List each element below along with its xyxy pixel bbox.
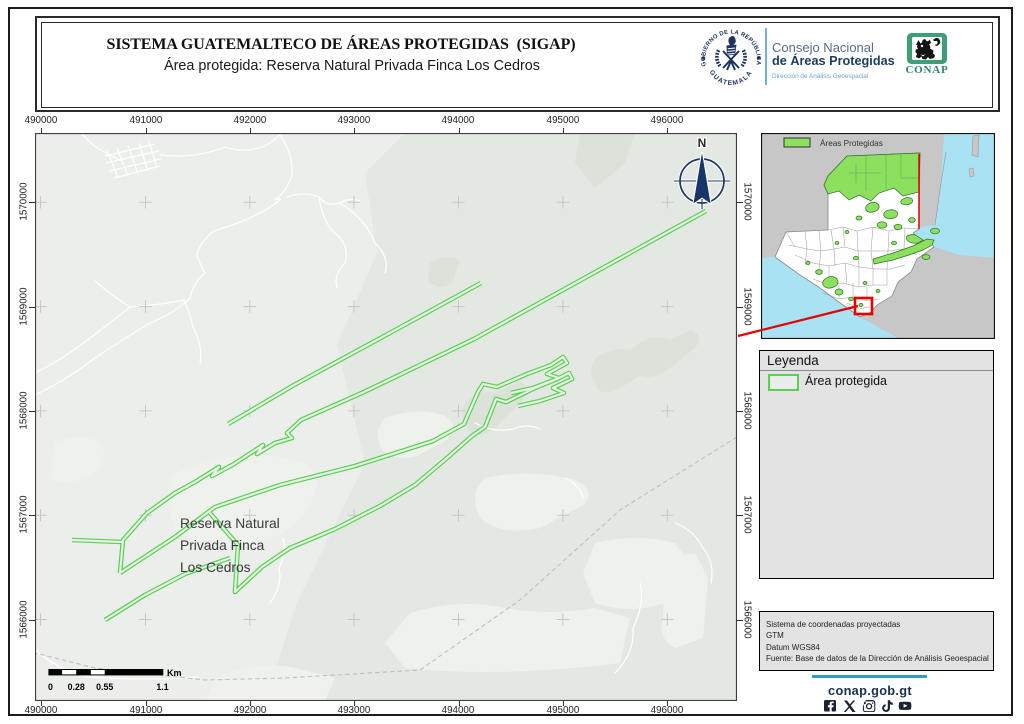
svg-text:Los Cedros: Los Cedros [180, 560, 251, 575]
svg-text:0.55: 0.55 [96, 682, 113, 692]
svg-text:Áreas Protegidas: Áreas Protegidas [820, 138, 883, 148]
svg-text:Privada Finca: Privada Finca [180, 538, 265, 553]
svg-text:Km: Km [167, 668, 182, 678]
svg-text:1.1: 1.1 [156, 682, 168, 692]
svg-text:0: 0 [48, 682, 53, 692]
svg-text:GUATEMALA: GUATEMALA [708, 69, 754, 87]
svg-text:CONAP: CONAP [905, 64, 948, 74]
svg-text:N: N [698, 136, 707, 150]
svg-text:0.28: 0.28 [68, 682, 85, 692]
svg-text:Reserva Natural: Reserva Natural [180, 516, 280, 531]
